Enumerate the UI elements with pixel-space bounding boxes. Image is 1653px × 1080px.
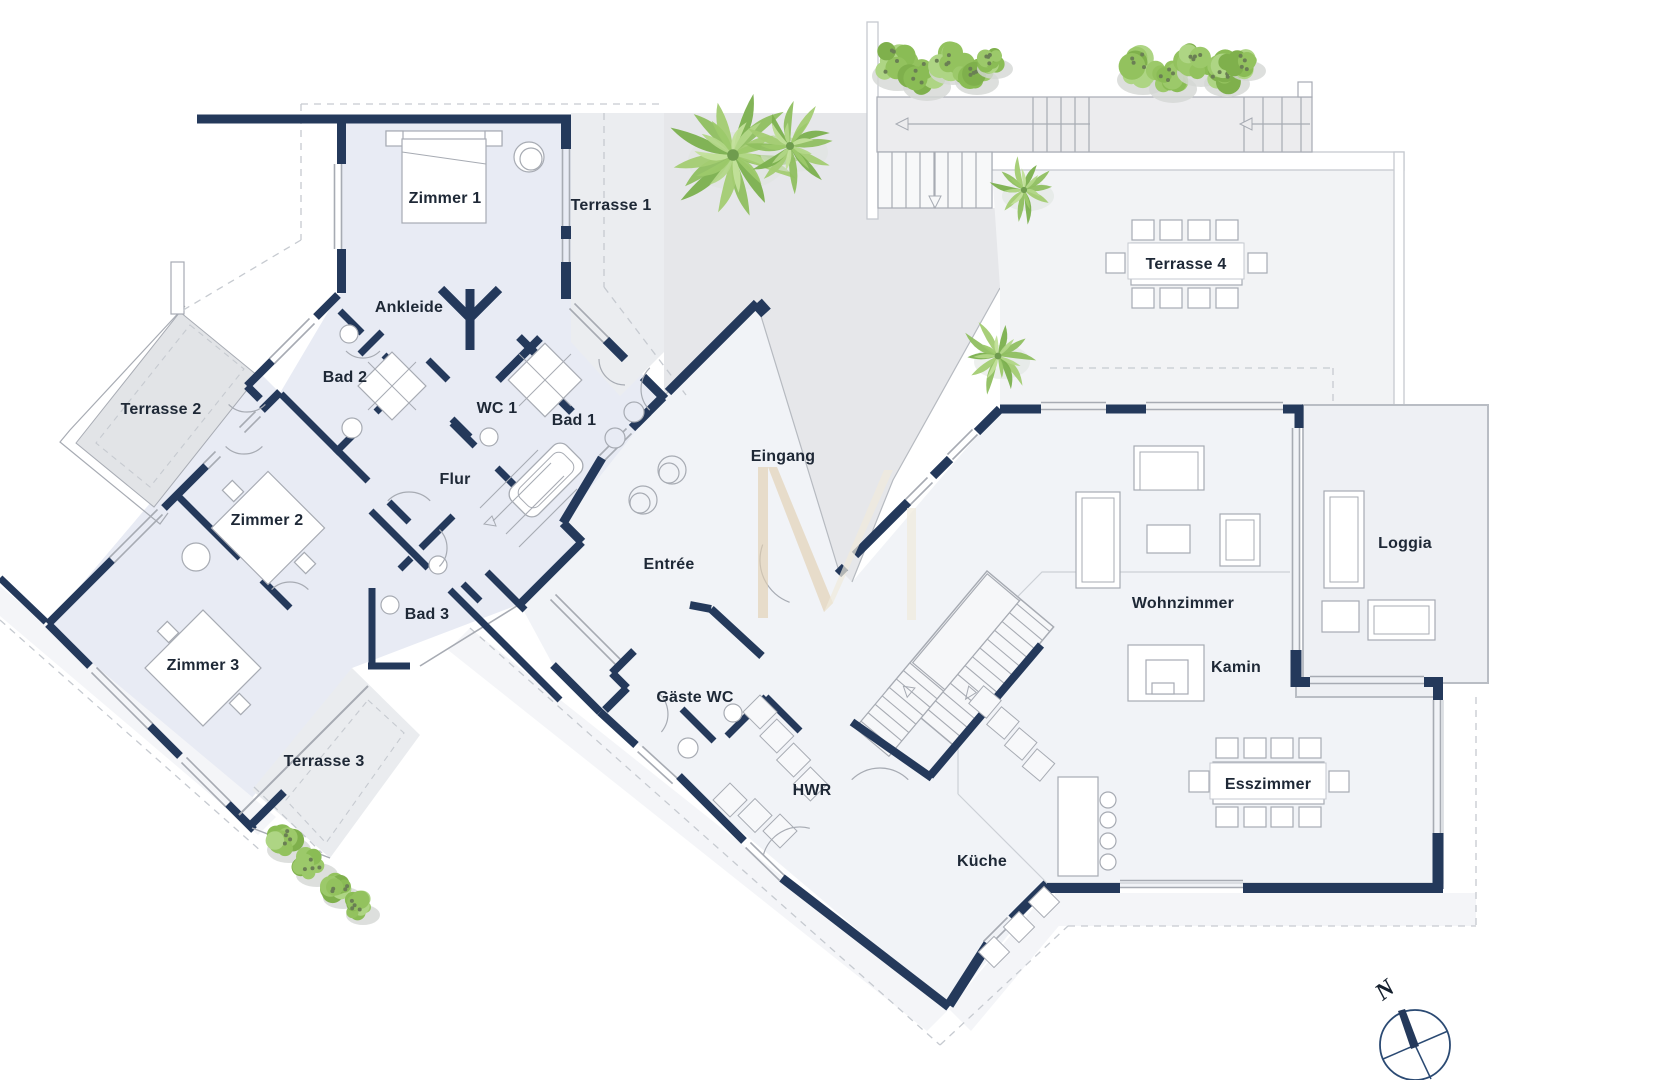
svg-text:Kamin: Kamin (1211, 659, 1261, 676)
svg-text:Esszimmer: Esszimmer (1225, 776, 1311, 793)
svg-text:Entrée: Entrée (644, 556, 695, 573)
svg-text:Ankleide: Ankleide (375, 299, 443, 316)
svg-text:Küche: Küche (957, 853, 1007, 870)
svg-text:Loggia: Loggia (1378, 535, 1432, 552)
svg-text:Terrasse 1: Terrasse 1 (571, 197, 652, 214)
svg-text:Zimmer 3: Zimmer 3 (167, 657, 240, 674)
svg-text:Flur: Flur (439, 471, 470, 488)
svg-text:Zimmer 1: Zimmer 1 (409, 190, 482, 207)
svg-text:Wohnzimmer: Wohnzimmer (1132, 595, 1234, 612)
svg-text:Bad 3: Bad 3 (405, 606, 450, 623)
svg-text:Terrasse 3: Terrasse 3 (284, 753, 365, 770)
svg-text:Gäste WC: Gäste WC (656, 689, 733, 706)
svg-text:WC 1: WC 1 (477, 400, 518, 417)
svg-text:Terrasse 4: Terrasse 4 (1146, 256, 1227, 273)
svg-text:Zimmer 2: Zimmer 2 (231, 512, 304, 529)
svg-text:Bad 1: Bad 1 (552, 412, 597, 429)
svg-text:Bad 2: Bad 2 (323, 369, 368, 386)
svg-text:HWR: HWR (793, 782, 832, 799)
svg-text:Eingang: Eingang (751, 448, 816, 465)
svg-text:Terrasse 2: Terrasse 2 (121, 401, 202, 418)
